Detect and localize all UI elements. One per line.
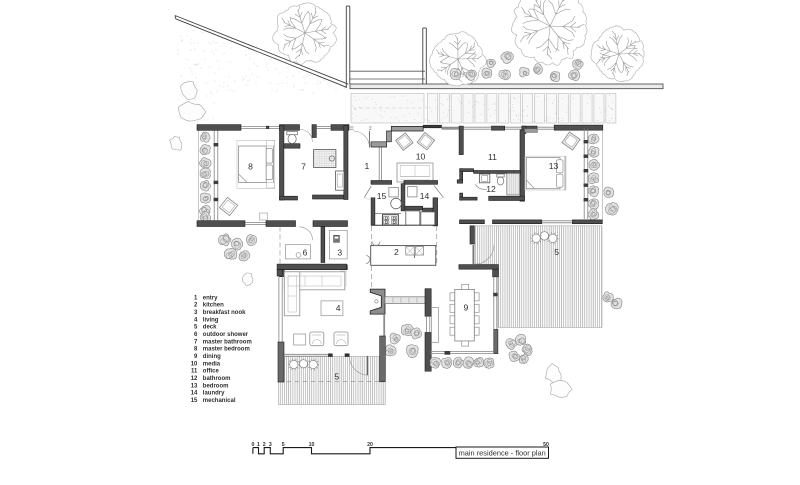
svg-text:entry: entry [203, 295, 218, 301]
svg-text:bedroom: bedroom [203, 383, 229, 389]
svg-text:7: 7 [301, 161, 306, 171]
svg-text:4: 4 [336, 303, 341, 313]
svg-text:kitchen: kitchen [203, 303, 224, 309]
svg-text:5: 5 [282, 442, 285, 448]
svg-text:14: 14 [420, 191, 430, 201]
svg-text:5: 5 [554, 247, 559, 257]
svg-text:1: 1 [257, 442, 260, 448]
svg-text:3: 3 [337, 247, 342, 257]
svg-text:2: 2 [394, 247, 399, 257]
svg-text:11: 11 [191, 369, 198, 375]
svg-text:8: 8 [248, 161, 253, 171]
svg-text:media: media [203, 361, 221, 367]
svg-text:2: 2 [263, 442, 266, 448]
svg-text:6: 6 [303, 247, 308, 257]
svg-text:outdoor shower: outdoor shower [203, 332, 249, 338]
svg-text:office: office [203, 369, 220, 375]
svg-text:bathroom: bathroom [203, 376, 231, 382]
svg-text:5: 5 [334, 372, 339, 382]
svg-text:12: 12 [486, 184, 496, 194]
svg-text:mechanical: mechanical [203, 398, 236, 404]
svg-text:13: 13 [191, 383, 198, 389]
svg-text:deck: deck [203, 325, 217, 331]
svg-text:14: 14 [191, 391, 198, 397]
svg-text:15: 15 [191, 398, 198, 404]
svg-text:3: 3 [269, 442, 272, 448]
svg-text:dining: dining [203, 354, 221, 360]
svg-text:1: 1 [365, 161, 370, 171]
svg-text:0: 0 [251, 442, 254, 448]
svg-text:master bathroom: master bathroom [203, 339, 252, 345]
svg-text:20: 20 [367, 442, 373, 448]
svg-text:10: 10 [309, 442, 315, 448]
svg-text:9: 9 [464, 303, 469, 313]
svg-text:main residence - floor plan: main residence - floor plan [459, 448, 546, 457]
svg-text:living: living [203, 317, 219, 323]
svg-text:15: 15 [377, 191, 387, 201]
svg-text:13: 13 [549, 161, 559, 171]
svg-text:master bedroom: master bedroom [203, 347, 250, 353]
svg-text:12: 12 [191, 376, 198, 382]
svg-text:10: 10 [191, 361, 198, 367]
svg-text:11: 11 [488, 152, 497, 162]
svg-text:breakfast nook: breakfast nook [203, 310, 246, 316]
svg-text:laundry: laundry [203, 391, 225, 397]
svg-text:10: 10 [416, 152, 426, 162]
